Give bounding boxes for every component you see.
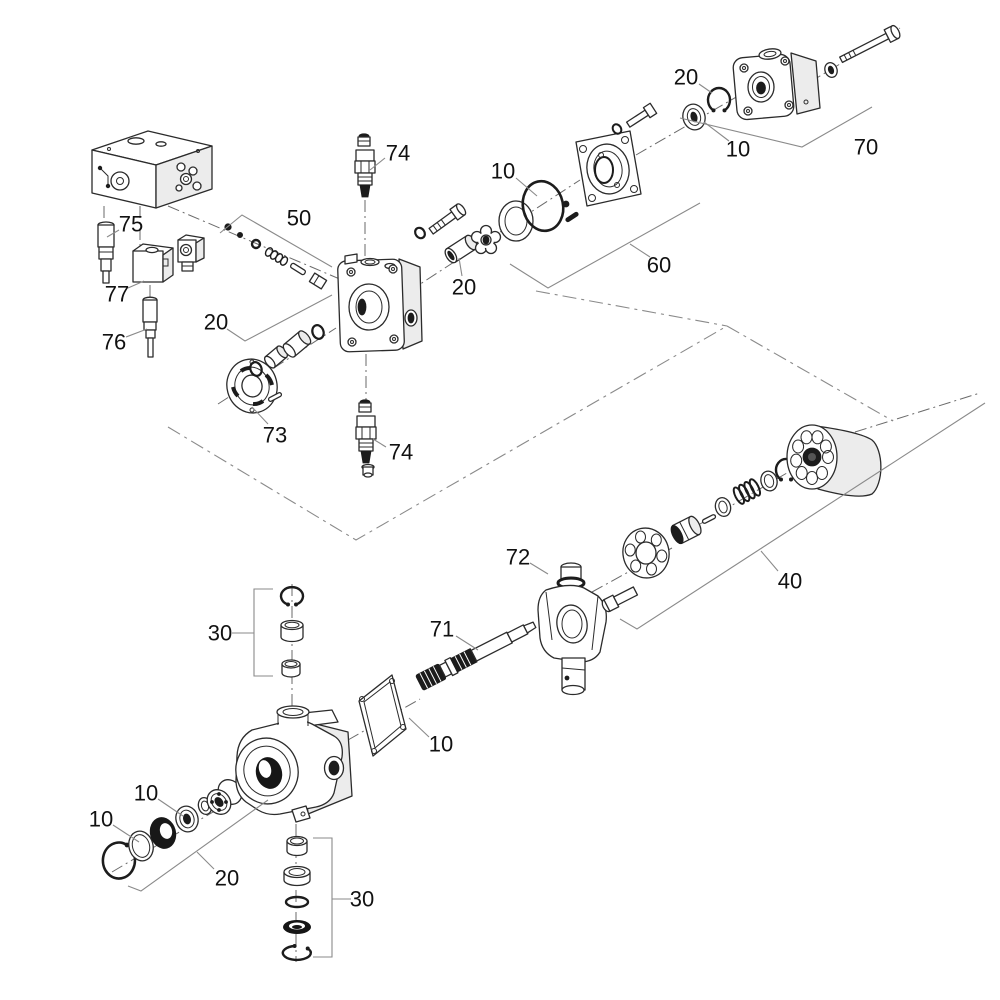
port-flange-60 <box>563 131 641 207</box>
spring-seal-kit-50 <box>225 224 327 289</box>
dowel-pin-40 <box>702 514 716 524</box>
spring-40 <box>732 478 762 505</box>
callout-label-71-15: 71 <box>430 617 454 642</box>
callout-label-20-5: 20 <box>204 310 228 335</box>
retaining-ring-20-top <box>708 88 730 112</box>
bushing-30-bottom-1 <box>287 837 307 856</box>
swash-plate-72 <box>538 563 606 695</box>
callout-leader-76 <box>126 329 147 337</box>
callout-label-20-9: 20 <box>674 65 698 90</box>
washer-40-a <box>713 496 732 518</box>
callout-leader-72 <box>530 563 548 574</box>
callout-label-74-13: 74 <box>389 440 413 465</box>
callout-label-10-19: 10 <box>134 781 158 806</box>
seal-30-bottom <box>283 920 311 934</box>
callout-leader-74 <box>373 439 386 447</box>
callout-label-20-7: 20 <box>452 275 476 300</box>
bushing-30-left-1 <box>281 621 303 642</box>
callout-label-40-16: 40 <box>778 569 802 594</box>
housing-bolt <box>413 202 467 240</box>
group-boundary <box>168 291 893 540</box>
callout-label-10-10: 10 <box>726 137 750 162</box>
needle-bearing-40 <box>669 515 704 546</box>
callout-bracket-60 <box>510 203 700 288</box>
diagram-canvas: 7450757776207320102010706074727140103010… <box>0 0 1000 1000</box>
callout-leader-10 <box>158 799 183 816</box>
gear-pump-70 <box>732 48 820 121</box>
long-bolt <box>838 24 902 66</box>
callout-label-72-14: 72 <box>506 545 530 570</box>
callout-bracket-30 <box>254 589 273 676</box>
connector-plug <box>178 235 204 271</box>
flange-bolt <box>611 103 657 135</box>
callout-label-70-11: 70 <box>854 135 878 160</box>
callout-label-50-1: 50 <box>287 206 311 231</box>
callout-leader-40 <box>761 551 778 571</box>
callout-label-76-4: 76 <box>102 330 126 355</box>
cylinder-block-40 <box>787 425 881 496</box>
callout-label-10-8: 10 <box>491 159 515 184</box>
bushing-30-bottom-2 <box>284 867 310 886</box>
pump-washer <box>823 61 839 79</box>
callout-label-75-2: 75 <box>119 212 143 237</box>
solenoid-tube-76 <box>143 297 157 357</box>
relief-valve-74-top <box>355 134 375 197</box>
gasket-10 <box>359 675 406 756</box>
callout-leader-10 <box>409 718 429 737</box>
callout-label-10-20: 10 <box>89 807 113 832</box>
relief-valve-74-bottom <box>356 400 376 477</box>
callout-label-60-12: 60 <box>647 253 671 278</box>
callout-label-30-18: 30 <box>208 621 232 646</box>
shaft-seal-10-bottom <box>173 804 201 835</box>
bushing-30-left-2 <box>282 660 300 677</box>
callout-leader-20 <box>699 84 712 93</box>
callout-label-77-3: 77 <box>105 282 129 307</box>
snap-ring-30-bottom <box>283 944 311 960</box>
exploded-parts-diagram: 7450757776207320102010706074727140103010… <box>0 0 1000 1000</box>
callout-label-30-22: 30 <box>350 887 374 912</box>
callout-label-20-21: 20 <box>215 866 239 891</box>
dowel-pin-top <box>565 212 579 223</box>
callout-label-74-0: 74 <box>386 141 410 166</box>
callout-bracket-20 <box>227 295 332 341</box>
callout-leader-20 <box>197 852 214 869</box>
callout-leader-71 <box>456 636 478 650</box>
callout-label-73-6: 73 <box>263 423 287 448</box>
shaft-seal-10-top <box>680 102 708 133</box>
pilot-valve-block <box>92 131 212 208</box>
solenoid-coil-77 <box>133 244 173 282</box>
callout-bracket-30 <box>313 838 332 957</box>
valve-plate-bolt <box>600 585 638 613</box>
o-ring-30-bottom <box>286 897 308 907</box>
callout-label-10-17: 10 <box>429 732 453 757</box>
callout-leader-20 <box>459 258 462 276</box>
main-housing <box>337 254 422 352</box>
callout-layer: 7450757776207320102010706074727140103010… <box>89 65 985 958</box>
solenoid-valve-75 <box>98 222 114 283</box>
pump-body <box>229 706 352 822</box>
callout-leader-10 <box>516 178 537 196</box>
